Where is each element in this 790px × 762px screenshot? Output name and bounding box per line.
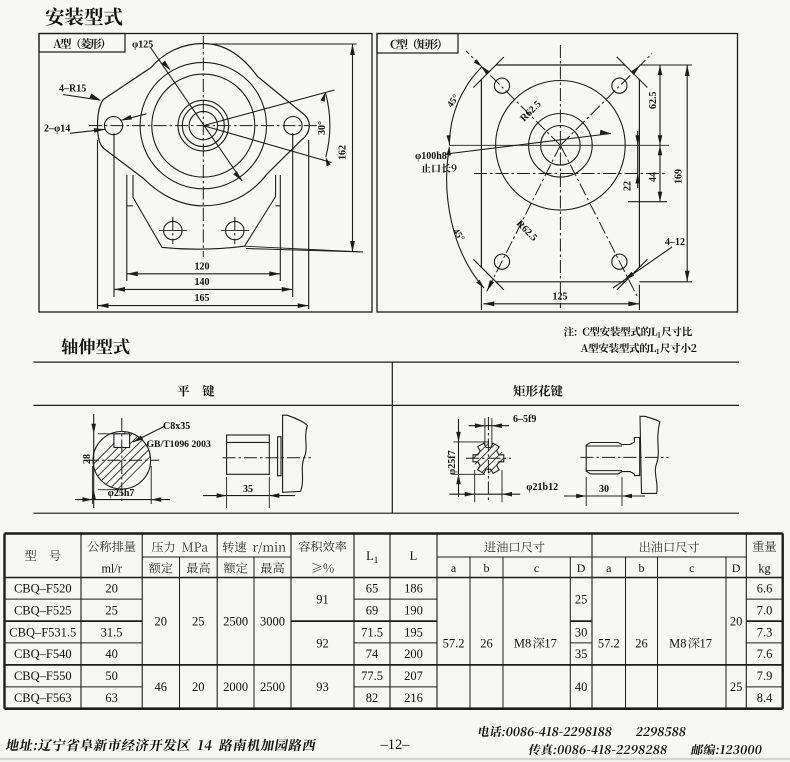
- svg-text:26: 26: [635, 636, 648, 650]
- svg-text:20: 20: [192, 680, 205, 694]
- svg-text:6.6: 6.6: [757, 582, 773, 596]
- svg-text:20: 20: [105, 582, 118, 596]
- svg-text:92: 92: [316, 636, 329, 650]
- svg-text:162: 162: [338, 145, 349, 160]
- svg-text:1: 1: [374, 555, 379, 565]
- svg-text:D: D: [732, 561, 741, 575]
- svg-text:20: 20: [730, 615, 743, 629]
- svg-text:57.2: 57.2: [443, 636, 465, 650]
- svg-text:65: 65: [366, 582, 379, 596]
- svg-text:30: 30: [599, 484, 609, 495]
- svg-text:25: 25: [105, 603, 118, 617]
- svg-text:4–12: 4–12: [665, 237, 685, 248]
- svg-text:kg: kg: [758, 562, 770, 576]
- svg-text:20: 20: [155, 615, 168, 629]
- svg-text:L: L: [366, 549, 374, 563]
- svg-text:L: L: [410, 549, 418, 563]
- svg-text:22: 22: [623, 181, 634, 191]
- svg-text:7.3: 7.3: [757, 625, 773, 639]
- svg-text:35: 35: [243, 484, 253, 495]
- svg-text:6–5f9: 6–5f9: [513, 414, 536, 425]
- svg-text:216: 216: [404, 691, 423, 705]
- svg-text:CBQ–F563: CBQ–F563: [14, 691, 72, 705]
- svg-text:2–φ14: 2–φ14: [44, 124, 70, 135]
- svg-text:207: 207: [404, 669, 423, 683]
- svg-text:35: 35: [575, 647, 588, 661]
- svg-text:62.5: 62.5: [648, 92, 659, 110]
- svg-text:CBQ–F550: CBQ–F550: [14, 669, 72, 683]
- svg-text:93: 93: [316, 680, 329, 694]
- svg-text:71.5: 71.5: [361, 625, 383, 639]
- svg-text:69: 69: [366, 603, 379, 617]
- svg-text:a: a: [606, 561, 612, 575]
- svg-text:186: 186: [404, 582, 423, 596]
- svg-text:8.4: 8.4: [757, 691, 773, 705]
- svg-text:30: 30: [575, 625, 588, 639]
- svg-text:CBQ–F525: CBQ–F525: [14, 603, 72, 617]
- svg-text:4–R15: 4–R15: [59, 84, 86, 95]
- svg-text:63: 63: [105, 691, 118, 705]
- svg-text:25: 25: [192, 615, 205, 629]
- svg-text:195: 195: [404, 625, 423, 639]
- svg-text:91: 91: [316, 593, 329, 607]
- svg-text:7.9: 7.9: [757, 669, 773, 683]
- svg-text:120: 120: [195, 262, 210, 273]
- svg-text:–12–: –12–: [380, 737, 411, 753]
- svg-text:190: 190: [404, 603, 423, 617]
- svg-text:D: D: [577, 561, 586, 575]
- svg-text:40: 40: [575, 680, 588, 694]
- svg-text:ml/r: ml/r: [101, 562, 121, 576]
- svg-text:2000: 2000: [223, 680, 248, 694]
- svg-text:CBQ–F540: CBQ–F540: [14, 647, 72, 661]
- svg-text:77.5: 77.5: [361, 669, 383, 683]
- svg-text:74: 74: [366, 647, 379, 661]
- svg-text:40: 40: [105, 647, 118, 661]
- svg-text:φ21b12: φ21b12: [526, 482, 558, 493]
- svg-text:7.6: 7.6: [757, 647, 773, 661]
- svg-text:M8: M8: [669, 636, 686, 650]
- svg-text:17: 17: [700, 636, 713, 650]
- svg-text:CBQ–F520: CBQ–F520: [14, 582, 72, 596]
- svg-text:3000: 3000: [260, 615, 285, 629]
- svg-text:2500: 2500: [260, 680, 285, 694]
- svg-text:c: c: [534, 561, 539, 575]
- svg-text:7.0: 7.0: [757, 603, 773, 617]
- svg-text:φ25f7: φ25f7: [447, 450, 458, 475]
- svg-text:200: 200: [404, 647, 423, 661]
- svg-text:c: c: [689, 561, 694, 575]
- svg-text:17: 17: [544, 636, 557, 650]
- svg-text:C8x35: C8x35: [163, 421, 190, 432]
- svg-text:a: a: [451, 561, 457, 575]
- svg-text:2500: 2500: [223, 615, 248, 629]
- svg-text:50: 50: [105, 669, 118, 683]
- svg-text:CBQ–F531.5: CBQ–F531.5: [9, 625, 76, 639]
- svg-text:30°: 30°: [317, 121, 328, 135]
- svg-text:82: 82: [366, 691, 379, 705]
- svg-text:28: 28: [82, 454, 93, 464]
- svg-text:φ125: φ125: [132, 40, 153, 51]
- svg-text:46: 46: [155, 680, 168, 694]
- svg-text:26: 26: [480, 636, 493, 650]
- svg-text:M8: M8: [514, 636, 531, 650]
- svg-text:165: 165: [195, 293, 210, 304]
- svg-text:25: 25: [730, 680, 743, 694]
- svg-text:57.2: 57.2: [598, 636, 620, 650]
- svg-text:φ100h8: φ100h8: [415, 151, 447, 162]
- svg-text:φ25h7: φ25h7: [108, 488, 135, 499]
- svg-text:25: 25: [575, 593, 588, 607]
- svg-text:31.5: 31.5: [101, 625, 123, 639]
- svg-text:GB/T1096 2003: GB/T1096 2003: [147, 439, 211, 450]
- svg-text:125: 125: [553, 292, 568, 303]
- svg-text:b: b: [484, 561, 490, 575]
- svg-text:169: 169: [674, 169, 685, 184]
- svg-text:b: b: [639, 561, 645, 575]
- svg-text:140: 140: [195, 277, 210, 288]
- svg-text:44: 44: [648, 172, 659, 182]
